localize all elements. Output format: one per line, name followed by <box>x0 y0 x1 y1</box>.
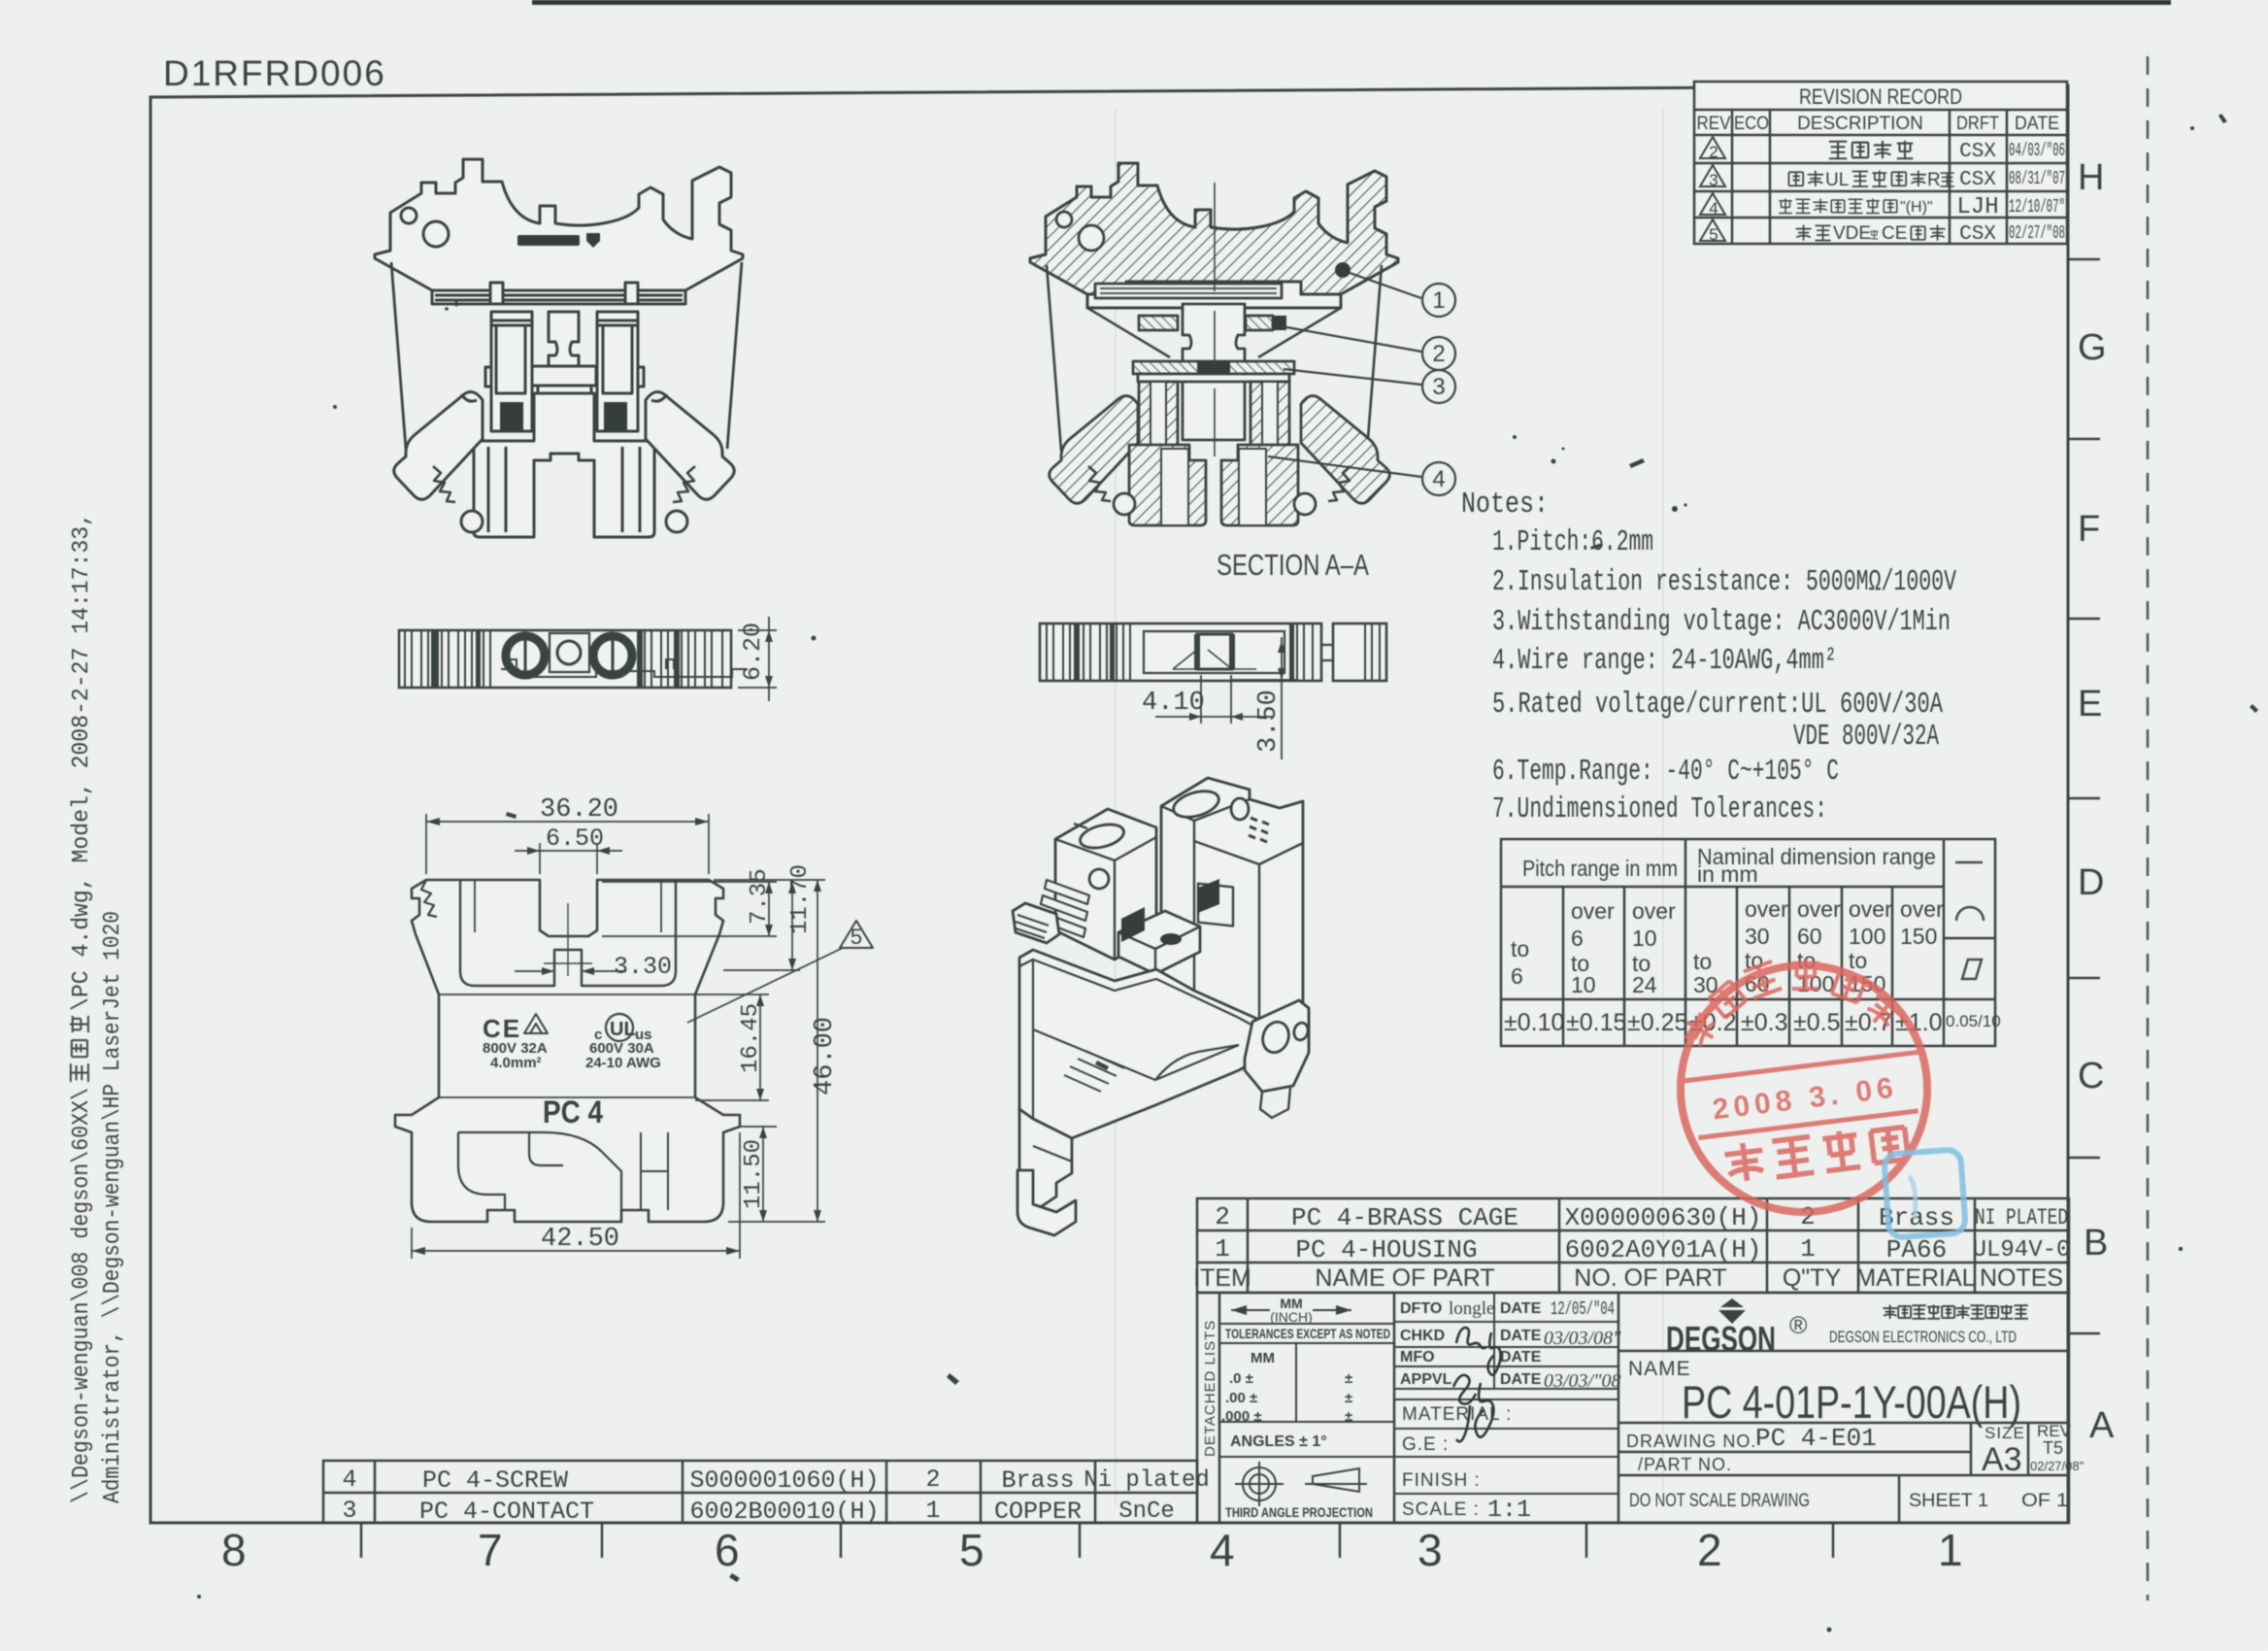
svg-text:to: to <box>1511 936 1529 961</box>
svg-text:1: 1 <box>1215 1234 1230 1264</box>
svg-text:UL: UL <box>1825 170 1849 190</box>
svg-text:±0.25: ±0.25 <box>1627 1009 1687 1036</box>
svg-text:Notes:: Notes: <box>1461 488 1549 522</box>
svg-text:4: 4 <box>1432 466 1445 492</box>
svg-text:03/03/08": 03/03/08" <box>1544 1328 1621 1349</box>
svg-text:08/31/"07: 08/31/"07 <box>2009 168 2065 189</box>
svg-text:30: 30 <box>1745 924 1770 949</box>
svg-text:11.70: 11.70 <box>787 864 814 934</box>
svg-text:4.Wire range: 24-10AWG,4mm²: 4.Wire range: 24-10AWG,4mm² <box>1492 644 1837 678</box>
svg-text:4: 4 <box>342 1466 356 1494</box>
svg-text:DO NOT SCALE DRAWING: DO NOT SCALE DRAWING <box>1629 1491 1810 1511</box>
svg-text:/PART NO.: /PART NO. <box>1638 1455 1732 1474</box>
svg-text:3.Withstanding voltage: AC300: 3.Withstanding voltage: AC3000V/1Min <box>1492 605 1951 639</box>
svg-text:4.0mm²: 4.0mm² <box>490 1055 542 1071</box>
svg-text:2: 2 <box>925 1466 940 1494</box>
svg-text:T5: T5 <box>2043 1438 2063 1458</box>
svg-text:COPPER: COPPER <box>994 1498 1082 1526</box>
svg-text:8: 8 <box>221 1525 247 1575</box>
svg-text:NI PLATED: NI PLATED <box>1975 1205 2068 1230</box>
svg-text:1: 1 <box>1800 1234 1816 1264</box>
svg-text:PC 4-HOUSING: PC 4-HOUSING <box>1295 1235 1477 1264</box>
svg-text:D: D <box>2078 862 2104 903</box>
svg-text:DATE: DATE <box>1500 1300 1542 1317</box>
svg-text:100: 100 <box>1849 924 1885 949</box>
svg-text:4: 4 <box>1709 199 1718 218</box>
svg-text:±0.10: ±0.10 <box>1504 1009 1564 1036</box>
svg-text:.0 ±: .0 ± <box>1229 1370 1253 1387</box>
svg-text:1.Pitch:6.2mm: 1.Pitch:6.2mm <box>1492 525 1653 559</box>
svg-text:SHEET 1: SHEET 1 <box>1909 1491 1988 1511</box>
svg-text:DATE: DATE <box>1500 1349 1542 1365</box>
svg-text:5: 5 <box>1709 225 1718 244</box>
svg-text:±: ± <box>1345 1408 1352 1425</box>
svg-text:UL94V-0: UL94V-0 <box>1973 1237 2071 1264</box>
svg-text:A: A <box>2089 1405 2115 1446</box>
svg-text:12/05/"04: 12/05/"04 <box>1551 1298 1615 1320</box>
svg-text:Pitch range in mm: Pitch range in mm <box>1522 856 1678 881</box>
svg-text:SCALE :: SCALE : <box>1402 1499 1480 1520</box>
svg-text:.000 ±: .000 ± <box>1221 1408 1262 1425</box>
svg-text:6: 6 <box>715 1525 740 1575</box>
svg-text:NOTES: NOTES <box>1980 1264 2063 1292</box>
svg-text:4: 4 <box>1210 1525 1235 1575</box>
svg-text:ANGLES ± 1°: ANGLES ± 1° <box>1230 1433 1327 1450</box>
svg-text:6.20: 6.20 <box>739 623 767 681</box>
svg-text:7: 7 <box>478 1525 503 1575</box>
svg-text:UL: UL <box>610 1019 636 1040</box>
svg-text:H: H <box>2078 157 2104 198</box>
svg-text:over: over <box>1797 896 1841 922</box>
svg-text:04/03/"06: 04/03/"06 <box>2009 140 2065 161</box>
svg-text:F: F <box>2078 509 2100 550</box>
svg-text:VDE: VDE <box>1833 223 1871 244</box>
svg-text:E: E <box>2078 684 2102 724</box>
svg-text:1: 1 <box>925 1497 940 1525</box>
svg-text:PA66: PA66 <box>1886 1235 1947 1264</box>
svg-text:TOLERANCES EXCEPT AS NOTED: TOLERANCES EXCEPT AS NOTED <box>1225 1327 1390 1341</box>
svg-text:G: G <box>2078 327 2107 368</box>
svg-text:2: 2 <box>1697 1525 1722 1575</box>
svg-text:±0.5: ±0.5 <box>1793 1009 1840 1036</box>
svg-text:"(H)": "(H)" <box>1900 199 1933 216</box>
svg-text:NAME OF PART: NAME OF PART <box>1315 1264 1494 1292</box>
svg-text:to: to <box>1693 949 1712 974</box>
svg-text:MM: MM <box>1251 1350 1275 1366</box>
svg-text:to: to <box>1849 948 1867 973</box>
svg-text:6: 6 <box>1511 963 1523 989</box>
svg-text:CSX: CSX <box>1959 223 1996 246</box>
svg-text:SECTION A–A: SECTION A–A <box>1217 548 1369 582</box>
svg-text:REV: REV <box>1697 114 1731 134</box>
svg-text:PC 4-BRASS CAGE: PC 4-BRASS CAGE <box>1291 1203 1518 1232</box>
svg-text:12/10/07": 12/10/07" <box>2009 196 2065 218</box>
svg-text:X000000630(H): X000000630(H) <box>1565 1203 1762 1232</box>
svg-text:3.50: 3.50 <box>1254 690 1284 753</box>
svg-text:DESCRIPTION: DESCRIPTION <box>1797 114 1923 134</box>
svg-text:1:1: 1:1 <box>1487 1496 1531 1524</box>
svg-text:DEGSON ELECTRONICS CO., LTD: DEGSON ELECTRONICS CO., LTD <box>1829 1329 2017 1346</box>
svg-text:NO. OF PART: NO. OF PART <box>1574 1264 1726 1292</box>
svg-text:24: 24 <box>1632 972 1657 997</box>
svg-text:10: 10 <box>1632 926 1657 951</box>
svg-text:REVISION RECORD: REVISION RECORD <box>1799 84 1962 109</box>
svg-text:Brass: Brass <box>1001 1466 1074 1495</box>
svg-text:PC 4-SCREW: PC 4-SCREW <box>422 1466 568 1495</box>
svg-text:SIZE: SIZE <box>1984 1424 2025 1442</box>
svg-text:over: over <box>1849 896 1892 922</box>
svg-text:2.Insulation resistance: 5000M: 2.Insulation resistance: 5000MΩ/1000V <box>1492 565 1956 599</box>
svg-text:2: 2 <box>1709 143 1718 161</box>
svg-text:A3: A3 <box>1982 1441 2022 1478</box>
svg-text:±: ± <box>1345 1370 1352 1387</box>
svg-text:in mm: in mm <box>1697 861 1758 887</box>
svg-text:S000001060(H): S000001060(H) <box>689 1466 879 1495</box>
svg-text:R: R <box>1927 170 1941 190</box>
svg-text:1: 1 <box>1938 1525 1963 1575</box>
svg-text:4.10: 4.10 <box>1142 689 1205 718</box>
svg-text:3: 3 <box>342 1497 356 1525</box>
svg-text:42.50: 42.50 <box>541 1225 619 1254</box>
svg-text:ECO: ECO <box>1734 114 1769 134</box>
svg-text:MFO: MFO <box>1400 1349 1435 1365</box>
svg-text:24-10 AWG: 24-10 AWG <box>585 1055 661 1071</box>
svg-text:®: ® <box>1789 1312 1808 1339</box>
svg-text:over: over <box>1571 898 1615 924</box>
svg-text:.00 ±: .00 ± <box>1225 1390 1257 1406</box>
svg-text:(INCH): (INCH) <box>1270 1309 1313 1325</box>
svg-text:PC 4-01P-1Y-00A(H): PC 4-01P-1Y-00A(H) <box>1682 1376 2021 1428</box>
svg-text:±0.15: ±0.15 <box>1566 1009 1626 1036</box>
svg-text:LJH: LJH <box>1956 194 1998 220</box>
svg-text:CHKD: CHKD <box>1400 1328 1445 1344</box>
svg-text:longle: longle <box>1449 1298 1495 1319</box>
svg-text:over: over <box>1745 896 1788 922</box>
svg-text:DRFT: DRFT <box>1956 114 1999 134</box>
svg-text:02/27/08": 02/27/08" <box>2030 1459 2085 1473</box>
svg-text:CSX: CSX <box>1959 169 1996 191</box>
svg-text:3.30: 3.30 <box>614 953 672 981</box>
svg-text:CE: CE <box>1882 223 1907 244</box>
svg-text:\PC 4.dwg, Model, 2008-2-27 14: \PC 4.dwg, Model, 2008-2-27 14:17:33, <box>69 513 95 1011</box>
svg-text:10: 10 <box>1571 972 1596 997</box>
svg-text:6002B00010(H): 6002B00010(H) <box>689 1498 879 1526</box>
svg-text:16.45: 16.45 <box>738 1003 764 1073</box>
svg-text:6.Temp.Range: -40° C~+105° C: 6.Temp.Range: -40° C~+105° C <box>1492 755 1839 789</box>
svg-text:MATERIAL: MATERIAL <box>1855 1264 1975 1292</box>
svg-text:THIRD ANGLE PROJECTION: THIRD ANGLE PROJECTION <box>1225 1505 1373 1520</box>
svg-text:1: 1 <box>1432 287 1445 314</box>
svg-text:60: 60 <box>1797 924 1822 949</box>
svg-text:DATE: DATE <box>1500 1371 1542 1388</box>
svg-text:DATE: DATE <box>1500 1328 1542 1344</box>
svg-text:2: 2 <box>1800 1202 1816 1231</box>
svg-text:PC 4-CONTACT: PC 4-CONTACT <box>419 1498 594 1526</box>
svg-text:6002A0Y01A(H): 6002A0Y01A(H) <box>1565 1235 1762 1264</box>
svg-text:DFTO: DFTO <box>1400 1300 1442 1317</box>
svg-text:MATERIAL :: MATERIAL : <box>1402 1404 1512 1425</box>
svg-text:OF 1: OF 1 <box>2021 1491 2068 1511</box>
svg-text:over: over <box>1632 898 1676 924</box>
svg-text:5.Rated voltage/current:UL 60: 5.Rated voltage/current:UL 600V/30A <box>1492 688 1943 722</box>
svg-text:CSX: CSX <box>1959 141 1996 163</box>
svg-text:46.00: 46.00 <box>811 1017 840 1095</box>
svg-text:03/03/"08: 03/03/"08 <box>1544 1370 1621 1392</box>
svg-text:CE: CE <box>483 1014 521 1043</box>
svg-text:DETACHED LISTS: DETACHED LISTS <box>1202 1320 1218 1457</box>
svg-text:VDE 800V/32A: VDE 800V/32A <box>1793 720 1939 754</box>
svg-text:3: 3 <box>1709 171 1718 189</box>
svg-text:7.35: 7.35 <box>747 868 773 925</box>
svg-text:PC 4-E01: PC 4-E01 <box>1755 1424 1877 1453</box>
svg-text:over: over <box>1900 896 1944 922</box>
svg-text:FINISH :: FINISH : <box>1402 1470 1481 1491</box>
svg-text:PC 4: PC 4 <box>543 1095 603 1129</box>
svg-text:6.50: 6.50 <box>546 825 604 853</box>
svg-text:Q"TY: Q"TY <box>1783 1264 1842 1292</box>
svg-text:5: 5 <box>850 925 862 949</box>
svg-text:DRAWING NO.: DRAWING NO. <box>1626 1432 1756 1451</box>
svg-text:ITEM: ITEM <box>1193 1264 1251 1292</box>
svg-text:3: 3 <box>1417 1525 1443 1575</box>
svg-text:36.20: 36.20 <box>540 795 618 825</box>
svg-text:±0.3: ±0.3 <box>1741 1009 1787 1036</box>
svg-text:Administrator, \\Degson-wengua: Administrator, \\Degson-wenguan\HP Laser… <box>100 911 126 1503</box>
svg-text:D1RFRD006: D1RFRD006 <box>163 53 386 93</box>
svg-text:DEGSON: DEGSON <box>1666 1319 1776 1359</box>
svg-text:6: 6 <box>1571 926 1584 951</box>
svg-text:APPVL: APPVL <box>1400 1371 1452 1388</box>
svg-text:SnCe: SnCe <box>1118 1499 1175 1525</box>
svg-text:2: 2 <box>1432 341 1445 367</box>
svg-text:150: 150 <box>1900 924 1937 949</box>
svg-text:5: 5 <box>959 1525 984 1575</box>
svg-text:11.50: 11.50 <box>741 1139 767 1209</box>
svg-text:B: B <box>2084 1223 2108 1264</box>
svg-text:G.E :: G.E : <box>1402 1434 1449 1455</box>
svg-text:2: 2 <box>1215 1202 1230 1231</box>
svg-text:C: C <box>2078 1056 2104 1096</box>
svg-text:3: 3 <box>1432 374 1445 400</box>
svg-text:7.Undimensioned Tolerances:: 7.Undimensioned Tolerances: <box>1492 792 1827 826</box>
svg-text:\\Degson-wenguan\008 degson\6: \\Degson-wenguan\008 degson\60XX\ <box>69 1088 95 1503</box>
svg-text:±: ± <box>1345 1390 1352 1406</box>
svg-text:Ni plated: Ni plated <box>1084 1467 1210 1494</box>
svg-text:DATE: DATE <box>2015 114 2059 134</box>
svg-text:02/27/"08: 02/27/"08 <box>2009 222 2065 244</box>
svg-text:0.05/10: 0.05/10 <box>1946 1012 2001 1030</box>
